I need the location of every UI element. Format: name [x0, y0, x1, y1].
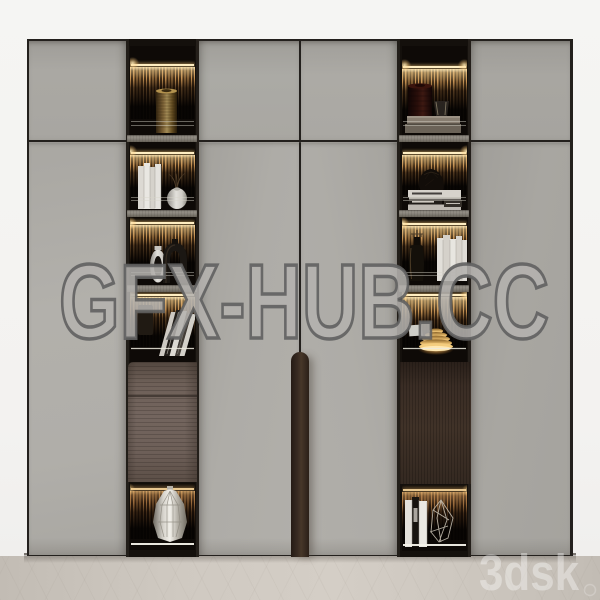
svg-text:3dsk: 3dsk [479, 544, 580, 600]
